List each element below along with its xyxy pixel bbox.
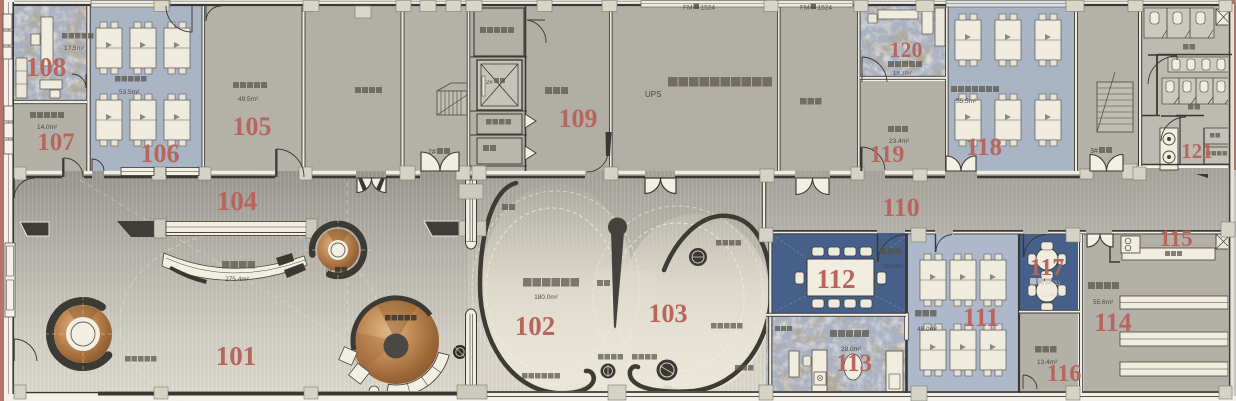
svg-text:105: 105 [233,112,272,141]
svg-text:18.3m²: 18.3m² [893,71,912,77]
svg-text:118: 118 [966,134,1002,161]
svg-text:113: 113 [836,350,872,377]
svg-text:109: 109 [559,104,598,133]
svg-text:119: 119 [870,142,905,168]
svg-text:117: 117 [1030,255,1065,281]
svg-text:115: 115 [1159,226,1192,251]
svg-text:1524: 1524 [818,5,833,12]
svg-text:114: 114 [1094,308,1132,337]
svg-text:1524: 1524 [701,5,716,12]
svg-text:112: 112 [816,264,855,294]
svg-text:(1): (1) [1052,280,1060,287]
svg-text:55.5m²: 55.5m² [956,98,977,105]
svg-text:110: 110 [882,193,920,222]
svg-text:107: 107 [37,129,75,156]
svg-text:30.5m²: 30.5m² [884,264,903,270]
svg-text:180.0m²: 180.0m² [534,294,559,301]
svg-text:275.4m²: 275.4m² [225,276,250,283]
svg-text:121: 121 [1181,139,1213,163]
svg-text:103: 103 [649,299,688,328]
svg-text:FM: FM [683,5,692,12]
svg-text:53.5m²: 53.5m² [119,89,140,96]
svg-text:17.5m²: 17.5m² [64,45,85,52]
svg-text:2#: 2# [486,80,493,86]
svg-text:48.0m²: 48.0m² [917,326,938,333]
svg-text:111: 111 [963,303,999,332]
svg-text:FM: FM [800,5,809,12]
svg-text:116: 116 [1047,361,1082,387]
svg-text:101: 101 [216,341,257,371]
svg-text:120: 120 [890,37,923,62]
svg-text:106: 106 [141,139,180,168]
svg-text:102: 102 [515,311,556,341]
svg-text:108: 108 [26,52,67,82]
svg-text:104: 104 [217,186,258,216]
svg-text:UPS: UPS [645,90,661,99]
svg-text:49.5m²: 49.5m² [238,96,259,103]
svg-text:13.4m²: 13.4m² [1041,293,1060,299]
svg-text:3#: 3# [1090,148,1098,155]
svg-text:2#: 2# [428,149,436,156]
svg-text:IP: IP [326,269,332,275]
svg-text:55.6m²: 55.6m² [1093,299,1114,306]
